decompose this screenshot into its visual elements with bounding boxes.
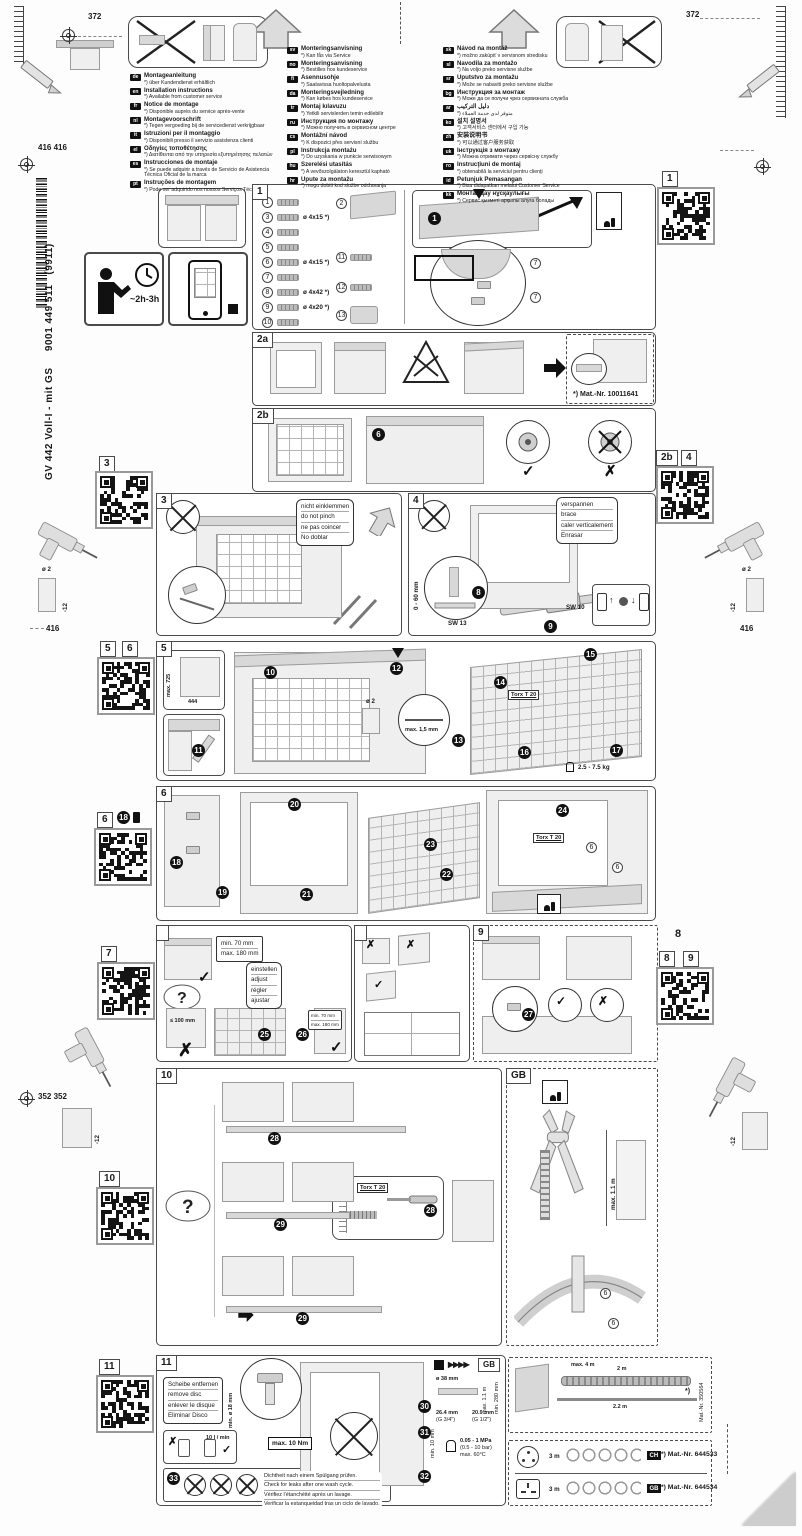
product-code: GV 442 Voll-I - mit GS bbox=[44, 367, 55, 480]
marker: 29 bbox=[296, 1312, 309, 1325]
cross-mark: ✗ bbox=[604, 462, 617, 480]
marker: 17 bbox=[610, 744, 623, 757]
language-entry: el Οδηγίες τοποθέτησης *) Διατίθενται απ… bbox=[130, 146, 276, 159]
language-entry: sr Uputstvo za montažu *) Može se nabavi… bbox=[443, 75, 611, 88]
language-entry: hr Upute za montažu *) mogu dobiti kod s… bbox=[287, 177, 437, 190]
dim-line bbox=[30, 628, 44, 629]
marker: 10 bbox=[264, 666, 277, 679]
arrow-right-icon bbox=[544, 358, 566, 378]
leak-check-note: Dichtheit nach einem Spülgang prüfen.Che… bbox=[262, 1471, 382, 1510]
language-entry: bg Инструкция за монтаж *) Може да се по… bbox=[443, 90, 611, 103]
plinth-rail-sketch bbox=[226, 1126, 406, 1133]
no-kink-icon bbox=[330, 1412, 378, 1460]
jug-icon bbox=[178, 1439, 190, 1457]
doc-revision: (9911) bbox=[44, 243, 55, 274]
counter-sketch bbox=[70, 48, 100, 70]
step6-label: 6 bbox=[156, 786, 172, 802]
detail-circle bbox=[571, 353, 607, 385]
detail-circle bbox=[430, 240, 526, 326]
intro-picture bbox=[158, 188, 246, 248]
note-line: No doblar bbox=[301, 533, 349, 542]
language-code-badge: sv bbox=[287, 47, 298, 54]
part-sketch bbox=[277, 289, 299, 296]
branch-line bbox=[214, 1105, 215, 1317]
marker: 16 bbox=[518, 746, 531, 759]
qr-code-step11 bbox=[96, 1375, 154, 1433]
arrow-up-icon bbox=[488, 8, 540, 50]
part-number: 7 bbox=[530, 292, 541, 303]
svg-text:?: ? bbox=[182, 1197, 194, 1218]
note-line: ne pas coincer bbox=[301, 523, 349, 533]
part-sketch bbox=[277, 259, 299, 266]
cross-mark: ✗ bbox=[168, 1435, 177, 1448]
note-line: enlever le disque bbox=[168, 1401, 218, 1411]
screw-marker: 6 bbox=[586, 842, 597, 853]
arrow-up-glyph: ↑ bbox=[609, 595, 614, 605]
no-tools-warning-icon bbox=[402, 340, 450, 384]
dim-line bbox=[606, 1130, 607, 1226]
door-inner-sketch bbox=[276, 424, 344, 476]
qr-step-label-9: 9 bbox=[683, 951, 699, 967]
country-badge: CH bbox=[647, 1451, 661, 1460]
step2b-label: 2b bbox=[252, 408, 274, 424]
language-entry: it Istruzioni per il montaggio *) Dispon… bbox=[130, 131, 276, 144]
note-line: remove disc bbox=[168, 1390, 218, 1400]
hose-asterisk: *) bbox=[685, 1388, 690, 1396]
pilot-dia-label: ø 2 bbox=[366, 698, 375, 705]
app-qr-box bbox=[168, 252, 248, 326]
clock-icon bbox=[134, 262, 160, 288]
qr-step-label-1: 1 bbox=[662, 171, 678, 187]
qr-step-label-10: 10 bbox=[99, 1171, 120, 1187]
language-code-badge: cs bbox=[287, 134, 298, 141]
language-entry: pl Instrukcja montażu *) Do uzyskania w … bbox=[287, 148, 437, 161]
wheel-icon bbox=[515, 429, 541, 455]
thread1-size: 26.4 mm bbox=[436, 1410, 458, 1416]
min-10mm-label: min. 10 mm bbox=[430, 1424, 436, 1458]
standpipe-sketch bbox=[540, 1150, 550, 1220]
language-code-badge: ro bbox=[443, 163, 454, 170]
note-line: verspannen bbox=[561, 500, 613, 510]
disposal-icon bbox=[537, 894, 561, 914]
language-code-badge: hu bbox=[287, 163, 298, 170]
language-entry: en Installation instructions *) Availabl… bbox=[130, 88, 276, 101]
qr-code-step2b4 bbox=[656, 466, 714, 524]
wrench-sketch bbox=[433, 595, 477, 615]
page-fold-corner bbox=[742, 1472, 796, 1526]
part-sketch bbox=[350, 306, 378, 324]
language-code-badge: es bbox=[130, 161, 141, 168]
marker: 30 bbox=[418, 1400, 431, 1413]
language-note: *) متوفر لدى خدمة العملاء bbox=[457, 112, 611, 117]
language-code-badge: en bbox=[130, 88, 141, 95]
qr-step-label-6: 6 bbox=[122, 641, 138, 657]
phone-icon bbox=[597, 593, 607, 611]
qr-code-step10 bbox=[96, 1187, 154, 1245]
gb-plug-icon bbox=[516, 1479, 540, 1499]
dim-line bbox=[720, 150, 754, 151]
sw13-label: SW 13 bbox=[448, 620, 467, 627]
drill-sketch bbox=[139, 35, 165, 45]
marker: 27 bbox=[522, 1008, 535, 1021]
doc-number-vertical: GV 442 Voll-I - mit GS 9001 449 511 (991… bbox=[44, 180, 56, 480]
language-entry: ru Инструкция по монтажу *) Можно получи… bbox=[287, 119, 437, 132]
door-edge-sketch bbox=[452, 1180, 494, 1242]
language-entry: ko 설치 설명서 *) 고객서비스 센터에서 구입 가능 bbox=[443, 119, 611, 132]
registration-mark-icon bbox=[20, 1092, 33, 1105]
language-note: *) Available from customer service bbox=[144, 95, 276, 100]
language-note: *) obtenabilă la serviciul pentru clienţ… bbox=[457, 170, 611, 175]
language-code-badge: tr bbox=[287, 105, 298, 112]
language-note: *) Сервис қызметі арқылы алуға болады bbox=[457, 199, 611, 204]
side-panel-sketch bbox=[168, 731, 192, 771]
part-sketch bbox=[277, 214, 299, 221]
cabinet-sketch bbox=[292, 1256, 354, 1296]
language-code-badge: pl bbox=[287, 148, 298, 155]
part-number: 7 bbox=[530, 258, 541, 269]
marker: 28 bbox=[268, 1132, 281, 1145]
cable-sketch bbox=[180, 597, 215, 610]
divider bbox=[404, 190, 405, 324]
weight-icon bbox=[566, 762, 574, 772]
torx-label: Torx T 20 bbox=[533, 833, 564, 843]
niche-width: 444 bbox=[188, 699, 197, 705]
hose-sketch bbox=[438, 1388, 478, 1395]
note-line: régler bbox=[251, 986, 277, 996]
front-panel-sketch bbox=[368, 802, 480, 914]
panel-warning-box-left bbox=[128, 16, 268, 68]
note-line: brace bbox=[561, 510, 613, 520]
note-line: adjust bbox=[251, 975, 277, 985]
language-entry: fr Notice de montage *) Disponible auprè… bbox=[130, 102, 276, 115]
counter-sketch bbox=[366, 416, 484, 426]
arrow-down-icon bbox=[473, 189, 485, 199]
clamp-sketch bbox=[742, 1112, 768, 1150]
note-line: Vérifiez l'étanchéité après un lavage. bbox=[264, 1491, 380, 1500]
country-badge: GB bbox=[647, 1484, 661, 1493]
drain-min-height: min. 280 mm bbox=[494, 1372, 500, 1414]
part-number: 5 bbox=[262, 242, 273, 253]
ref-arrows: ▶▶▶▶ bbox=[448, 1360, 469, 1369]
question-cloud-icon: ? bbox=[164, 1188, 212, 1224]
no-icon bbox=[210, 1474, 232, 1496]
language-code-badge: el bbox=[130, 146, 141, 153]
language-note: *) Bestilles hos kundeservice bbox=[301, 68, 437, 73]
language-list-col2: sv Monteringsanvisning *) Kan fås via Se… bbox=[287, 46, 437, 191]
hose-dia-label: ø 38 mm bbox=[436, 1376, 458, 1382]
counter-sketch bbox=[482, 936, 540, 944]
note-line: Check for leaks after one wash cycle. bbox=[264, 1481, 380, 1490]
page-step-number-8: 8 bbox=[675, 928, 681, 941]
marker: 21 bbox=[300, 888, 313, 901]
step3-label: 3 bbox=[156, 493, 172, 509]
marker: 33 bbox=[167, 1472, 180, 1485]
leak-check-box: 33 Dichtheit nach einem Spülgang prüfen.… bbox=[163, 1468, 391, 1502]
dim-416-right: 416 bbox=[740, 624, 753, 633]
door-inner-sketch bbox=[250, 802, 348, 886]
note-line: min. 70 mm bbox=[221, 939, 258, 949]
pressure-line2: (0.5 - 10 bar) bbox=[460, 1445, 492, 1451]
language-code-badge: it bbox=[130, 132, 141, 139]
language-note: *) Saatavissa huoltopalvelusta bbox=[301, 83, 437, 88]
note-line: do not pinch bbox=[301, 512, 349, 522]
gb-max-height: max. 1.1 m bbox=[610, 1140, 617, 1210]
language-note: *) Kan fås via Service bbox=[301, 54, 437, 59]
language-note: *) Yetkili servislerden temin edilebilir bbox=[301, 112, 437, 117]
torx-label: Torx T 20 bbox=[508, 690, 539, 700]
part-sketch bbox=[350, 284, 372, 291]
qr-step-label-4: 4 bbox=[681, 450, 697, 466]
counter-sketch bbox=[334, 342, 386, 351]
qr-code-step7 bbox=[97, 962, 155, 1020]
pilot-hole-depth: -12 bbox=[730, 582, 737, 612]
cross-mark: ✗ bbox=[598, 994, 608, 1008]
note-line: max. 180 mm bbox=[221, 949, 258, 958]
phone-icon bbox=[639, 593, 649, 611]
marker: 15 bbox=[584, 648, 597, 661]
language-note: *) 고객서비스 센터에서 구입 가능 bbox=[457, 126, 611, 131]
tap-thread-sketch bbox=[265, 1383, 275, 1405]
cabinet-sketch bbox=[222, 1256, 284, 1296]
cord-sketch bbox=[565, 1447, 641, 1463]
board-sketch bbox=[362, 708, 380, 734]
step5-dim-box: max. 725 444 bbox=[163, 650, 225, 710]
detail-circle bbox=[588, 420, 632, 464]
language-note: *) 可以通过客户服务获取 bbox=[457, 141, 611, 146]
cabinet-sketch bbox=[222, 1082, 284, 1122]
gap-detail-circle: max. 1,5 mm bbox=[398, 694, 450, 746]
cabinet-sketch bbox=[276, 350, 316, 388]
dishwasher-sketch bbox=[366, 416, 484, 484]
screw-strip-sketch bbox=[347, 1211, 377, 1219]
language-code-badge: fr bbox=[130, 103, 141, 110]
part-sketch bbox=[277, 244, 299, 251]
torque-box: max. 10 Nm bbox=[268, 1437, 312, 1450]
language-entry: cs Montážní návod *) K dispozici přes se… bbox=[287, 133, 437, 146]
hose-extension-box: max. 4 m 2 m 2.2 m *) Mat.-Nr. 350564 bbox=[508, 1357, 712, 1433]
gb-label: GB bbox=[506, 1068, 531, 1084]
qr-step-label-11: 11 bbox=[99, 1359, 120, 1375]
language-entry: da Monteringsvejledning *) Kan købes hos… bbox=[287, 90, 437, 103]
flow-box: ✗ 10 l / min ✓ bbox=[163, 1430, 237, 1464]
language-note: *) K dispozici přes servisní službu bbox=[301, 141, 437, 146]
supply-hose-sketch bbox=[561, 1376, 691, 1386]
cabinet-sketch bbox=[292, 1082, 354, 1122]
language-entry: no Monteringsanvisning *) Bestilles hos … bbox=[287, 61, 437, 74]
dim-line bbox=[78, 36, 122, 37]
screw-size: ø 4x15 *) bbox=[303, 259, 329, 266]
qr-code-step89 bbox=[656, 967, 714, 1025]
part-sketch bbox=[277, 229, 299, 236]
part-number: 6 bbox=[262, 257, 273, 268]
language-list-col1: de Montageanleitung *) über Kundendienst… bbox=[130, 73, 276, 195]
qr-step-label-7: 7 bbox=[101, 946, 117, 962]
marker: 26 bbox=[296, 1028, 309, 1041]
check-mark: ✓ bbox=[198, 968, 211, 986]
language-code-badge: sk bbox=[443, 47, 454, 54]
smartphone-icon bbox=[188, 260, 222, 320]
cross-mark: ✗ bbox=[406, 938, 415, 951]
height-range: 0 - 60 mm bbox=[413, 566, 420, 610]
tools-time-box: ~2h-3h bbox=[84, 252, 164, 326]
language-entry: nl Montagevoorschrift *) Tegen vergoedin… bbox=[130, 117, 276, 130]
thread2-size: 20.9 mm bbox=[472, 1410, 494, 1416]
thread1-type: (G 3/4") bbox=[436, 1417, 455, 1423]
qr-chip-icon bbox=[228, 304, 238, 314]
language-code-badge: id bbox=[443, 177, 454, 184]
language-entry: de Montageanleitung *) über Kundendienst… bbox=[130, 73, 276, 86]
marker: 22 bbox=[440, 868, 453, 881]
hinge-clip-sketch bbox=[186, 846, 200, 854]
board-sketch bbox=[746, 578, 764, 612]
cabinet-sketch bbox=[222, 1162, 284, 1202]
bracket-sketch bbox=[507, 1003, 521, 1011]
adjust-note: einstellenadjustréglerajustar bbox=[246, 962, 282, 1009]
disposal-icon bbox=[596, 192, 622, 230]
gap-line bbox=[405, 719, 443, 721]
plinth-range-note-small: min. 70 mm max. 180 mm bbox=[308, 1010, 342, 1030]
ch-plug-icon bbox=[517, 1446, 539, 1468]
center-crop-mark-top bbox=[400, 2, 401, 44]
remove-disc-note: Scheibe entfernenremove discenlever le d… bbox=[163, 1377, 223, 1424]
panel-sketch bbox=[167, 205, 201, 241]
registration-mark-icon bbox=[20, 158, 33, 171]
language-note: *) Διατίθενται από την υπηρεσία εξυπηρέτ… bbox=[144, 153, 276, 158]
part-number: 9 bbox=[262, 302, 273, 313]
part-number: 2 bbox=[336, 198, 347, 209]
part-sketch bbox=[277, 319, 299, 326]
qr-code-step1 bbox=[657, 187, 715, 245]
crop-mark-bottom bbox=[727, 1424, 728, 1474]
language-code-badge: da bbox=[287, 90, 298, 97]
arrow-down-icon bbox=[392, 648, 404, 658]
arrow-down-glyph: ↓ bbox=[631, 595, 636, 605]
cabinet-sketch bbox=[566, 936, 632, 980]
pencil-icon bbox=[729, 53, 786, 110]
note-line: Eliminar Disco bbox=[168, 1411, 218, 1420]
language-note: *) A vevőszolgálaton keresztül kapható bbox=[301, 170, 437, 175]
language-note: *) Може да се получи чрез сервизната слу… bbox=[457, 97, 611, 102]
language-note: *) mogu dobiti kod službe održavanja bbox=[301, 184, 437, 189]
part2-panel-sketch bbox=[350, 191, 396, 220]
check-mark: ✓ bbox=[330, 1038, 343, 1056]
part-number: 7 bbox=[262, 272, 273, 283]
part-number: 4 bbox=[262, 227, 273, 238]
phone-mini-icon bbox=[133, 812, 140, 823]
marker: 14 bbox=[494, 676, 507, 689]
part-sketch bbox=[277, 304, 299, 311]
note-line: nicht einklemmen bbox=[301, 502, 349, 512]
pressure-lock-icon bbox=[446, 1440, 456, 1452]
pilot-hole-dia: ø 2 bbox=[742, 566, 751, 573]
check-mark: ✓ bbox=[556, 994, 566, 1008]
step5-label: 5 bbox=[156, 641, 172, 657]
language-note: *) Kan købes hos kundeservice bbox=[301, 97, 437, 102]
panel-sketch bbox=[233, 23, 257, 61]
no-icon bbox=[184, 1474, 206, 1496]
board-sketch bbox=[38, 578, 56, 612]
detail-circle bbox=[168, 566, 226, 624]
cross-mark: ✗ bbox=[178, 1040, 193, 1061]
pressure-line3: max. 60°C bbox=[460, 1452, 486, 1458]
torx-label: Torx T 20 bbox=[357, 1183, 388, 1193]
note-line: Dichtheit nach einem Spülgang prüfen. bbox=[264, 1472, 380, 1481]
marker: 20 bbox=[288, 798, 301, 811]
language-note: *) Može se nabaviti preko servisne služb… bbox=[457, 83, 611, 88]
part-number: 11 bbox=[336, 252, 347, 263]
hose-mat-nr: Mat.-Nr. 350564 bbox=[699, 1364, 705, 1422]
language-code-badge: zh bbox=[443, 134, 454, 141]
note-line: einstellen bbox=[251, 965, 277, 975]
niche-front-sketch bbox=[364, 1012, 460, 1056]
sink-corner-sketch bbox=[515, 1364, 549, 1413]
do-not-pinch-note: nicht einklemmendo not pinchne pas coinc… bbox=[296, 499, 354, 546]
qr-code-step56 bbox=[97, 657, 155, 715]
foot-sketch bbox=[449, 567, 459, 597]
pliers-icon bbox=[518, 1100, 602, 1204]
language-note: *) Можно получить в сервисном центре bbox=[301, 126, 437, 131]
app-level-hint-box: ↑ ↓ bbox=[592, 584, 650, 626]
note-line: ajustar bbox=[251, 996, 277, 1005]
part-sketch bbox=[350, 254, 372, 261]
language-code-badge: bg bbox=[443, 90, 454, 97]
language-entry: zh 安装说明书 *) 可以通过客户服务获取 bbox=[443, 133, 611, 146]
part-number: 8 bbox=[262, 287, 273, 298]
part-number: 3 bbox=[262, 212, 273, 223]
language-entry: tr Montaj kılavuzu *) Yetkili servislerd… bbox=[287, 104, 437, 117]
counter-sketch bbox=[164, 938, 212, 946]
language-code-badge: sr bbox=[443, 76, 454, 83]
language-list-col3: sk Návod na montáž *) možno zakúpiť v se… bbox=[443, 46, 611, 206]
panel-sketch bbox=[203, 25, 211, 61]
lt-100-label: ≤ 100 mm bbox=[170, 1018, 195, 1024]
marker: 32 bbox=[418, 1470, 431, 1483]
language-note: *) Do uzyskania w punkcie serwisowym bbox=[301, 155, 437, 160]
qr-step-label-3: 3 bbox=[99, 456, 115, 472]
language-note: *) über Kundendienst erhältlich bbox=[144, 81, 276, 86]
doc-number: 9001 449 511 bbox=[44, 284, 55, 351]
dim-352-352: 352 352 bbox=[38, 1092, 67, 1101]
pilot-hole-depth: -12 bbox=[62, 582, 69, 612]
duration-label: ~2h-3h bbox=[130, 294, 159, 304]
marker: 18 bbox=[170, 856, 183, 869]
marker: 1 bbox=[428, 212, 441, 225]
part-number: 10 bbox=[262, 317, 273, 328]
dim-372-left: 372 bbox=[88, 12, 101, 21]
marker: 24 bbox=[556, 804, 569, 817]
part-number: 13 bbox=[336, 310, 347, 321]
wheel-icon bbox=[597, 429, 623, 455]
gap-dim: max. 1,5 mm bbox=[405, 727, 438, 733]
language-entry: hu Szerelési utasítás *) A vevőszolgálat… bbox=[287, 162, 437, 175]
marker: 28 bbox=[424, 1204, 437, 1217]
note-line: min. 70 mm bbox=[311, 1012, 339, 1021]
flow-rate: 10 l / min bbox=[206, 1435, 230, 1441]
language-code-badge: no bbox=[287, 61, 298, 68]
marker: 29 bbox=[274, 1218, 287, 1231]
no-icon bbox=[236, 1474, 258, 1496]
panel-weight: 2.5 - 7.5 kg bbox=[578, 764, 610, 771]
arrow-up-icon bbox=[250, 8, 302, 50]
language-note: *) Tegen vergoeding bij de servicedienst… bbox=[144, 124, 276, 129]
language-code-badge: pt bbox=[130, 181, 141, 188]
marker-18: 18 bbox=[117, 811, 130, 824]
marker: 9 bbox=[544, 620, 557, 633]
bubble-level-icon bbox=[619, 597, 628, 606]
language-note: *) Disponible auprès du service après-ve… bbox=[144, 110, 276, 115]
part-number: 12 bbox=[336, 282, 347, 293]
divider bbox=[515, 1473, 707, 1474]
